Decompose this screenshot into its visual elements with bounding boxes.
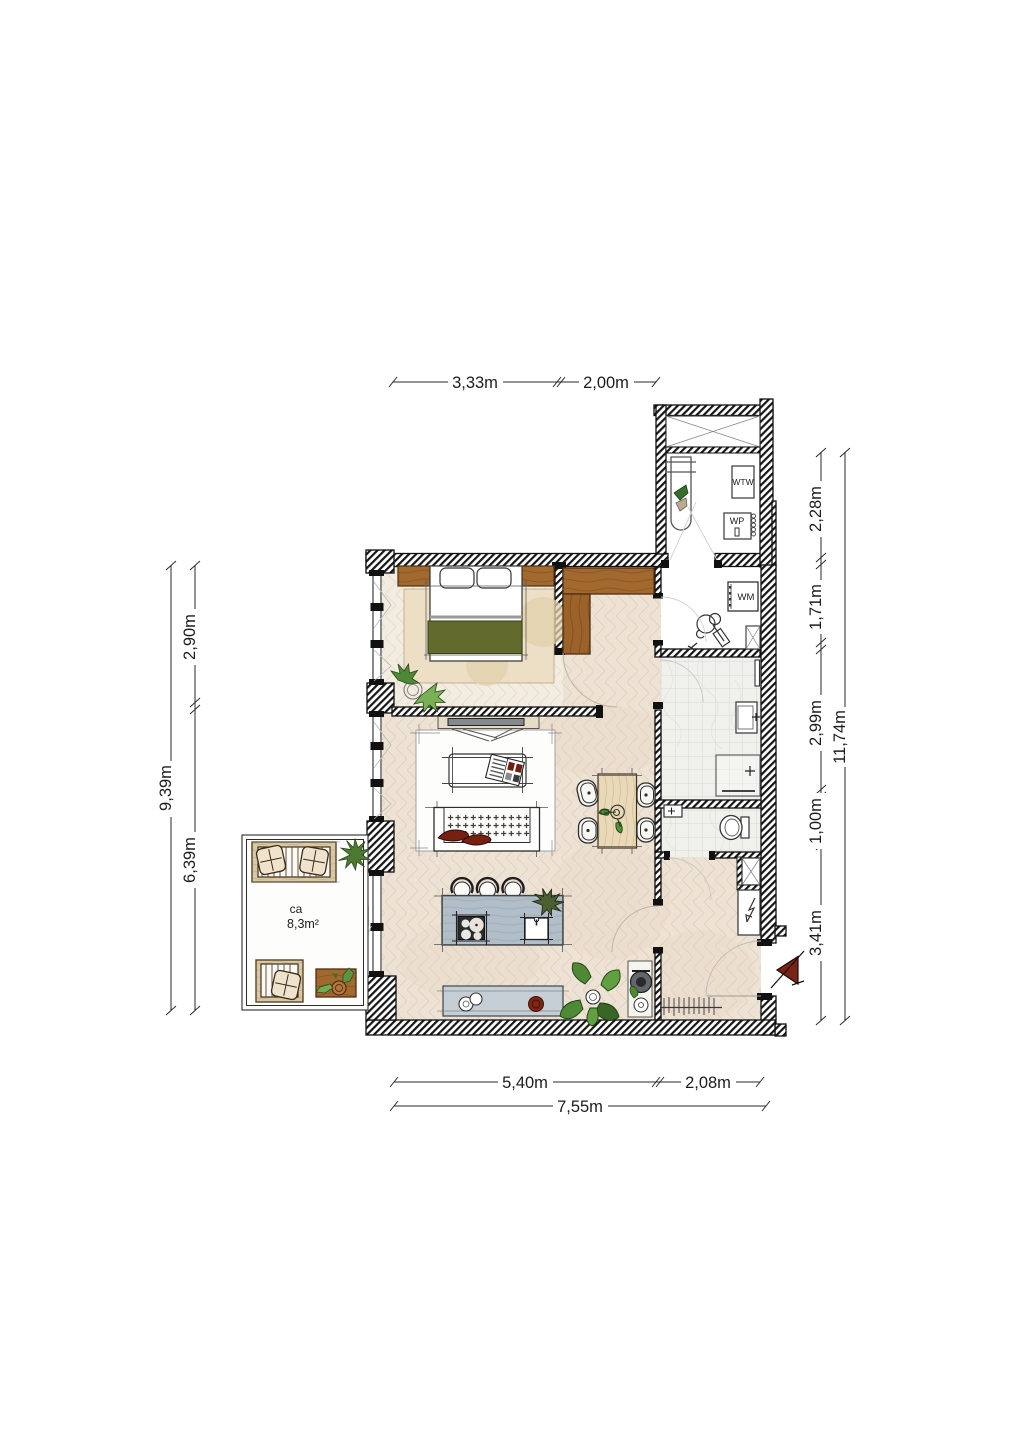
svg-text:2,00m: 2,00m <box>583 374 629 392</box>
svg-text:2,08m: 2,08m <box>685 1074 731 1092</box>
svg-text:2,99m: 2,99m <box>807 700 825 746</box>
svg-text:WTW: WTW <box>732 477 753 487</box>
svg-text:1,71m: 1,71m <box>807 584 825 630</box>
svg-text:11,74m: 11,74m <box>831 710 849 764</box>
svg-text:2,90m: 2,90m <box>181 614 199 660</box>
svg-text:5,40m: 5,40m <box>502 1074 548 1092</box>
svg-text:3,41m: 3,41m <box>807 910 825 956</box>
svg-text:8,3m²: 8,3m² <box>287 917 319 931</box>
svg-text:3,33m: 3,33m <box>452 374 498 392</box>
svg-text:WM: WM <box>738 592 755 603</box>
svg-text:7,55m: 7,55m <box>557 1098 603 1116</box>
svg-text:6,39m: 6,39m <box>181 837 199 883</box>
svg-text:2,28m: 2,28m <box>807 486 825 532</box>
svg-text:1,00m: 1,00m <box>807 798 825 844</box>
svg-text:WP: WP <box>730 516 745 526</box>
svg-text:9,39m: 9,39m <box>157 765 175 811</box>
svg-text:ca: ca <box>290 902 303 916</box>
